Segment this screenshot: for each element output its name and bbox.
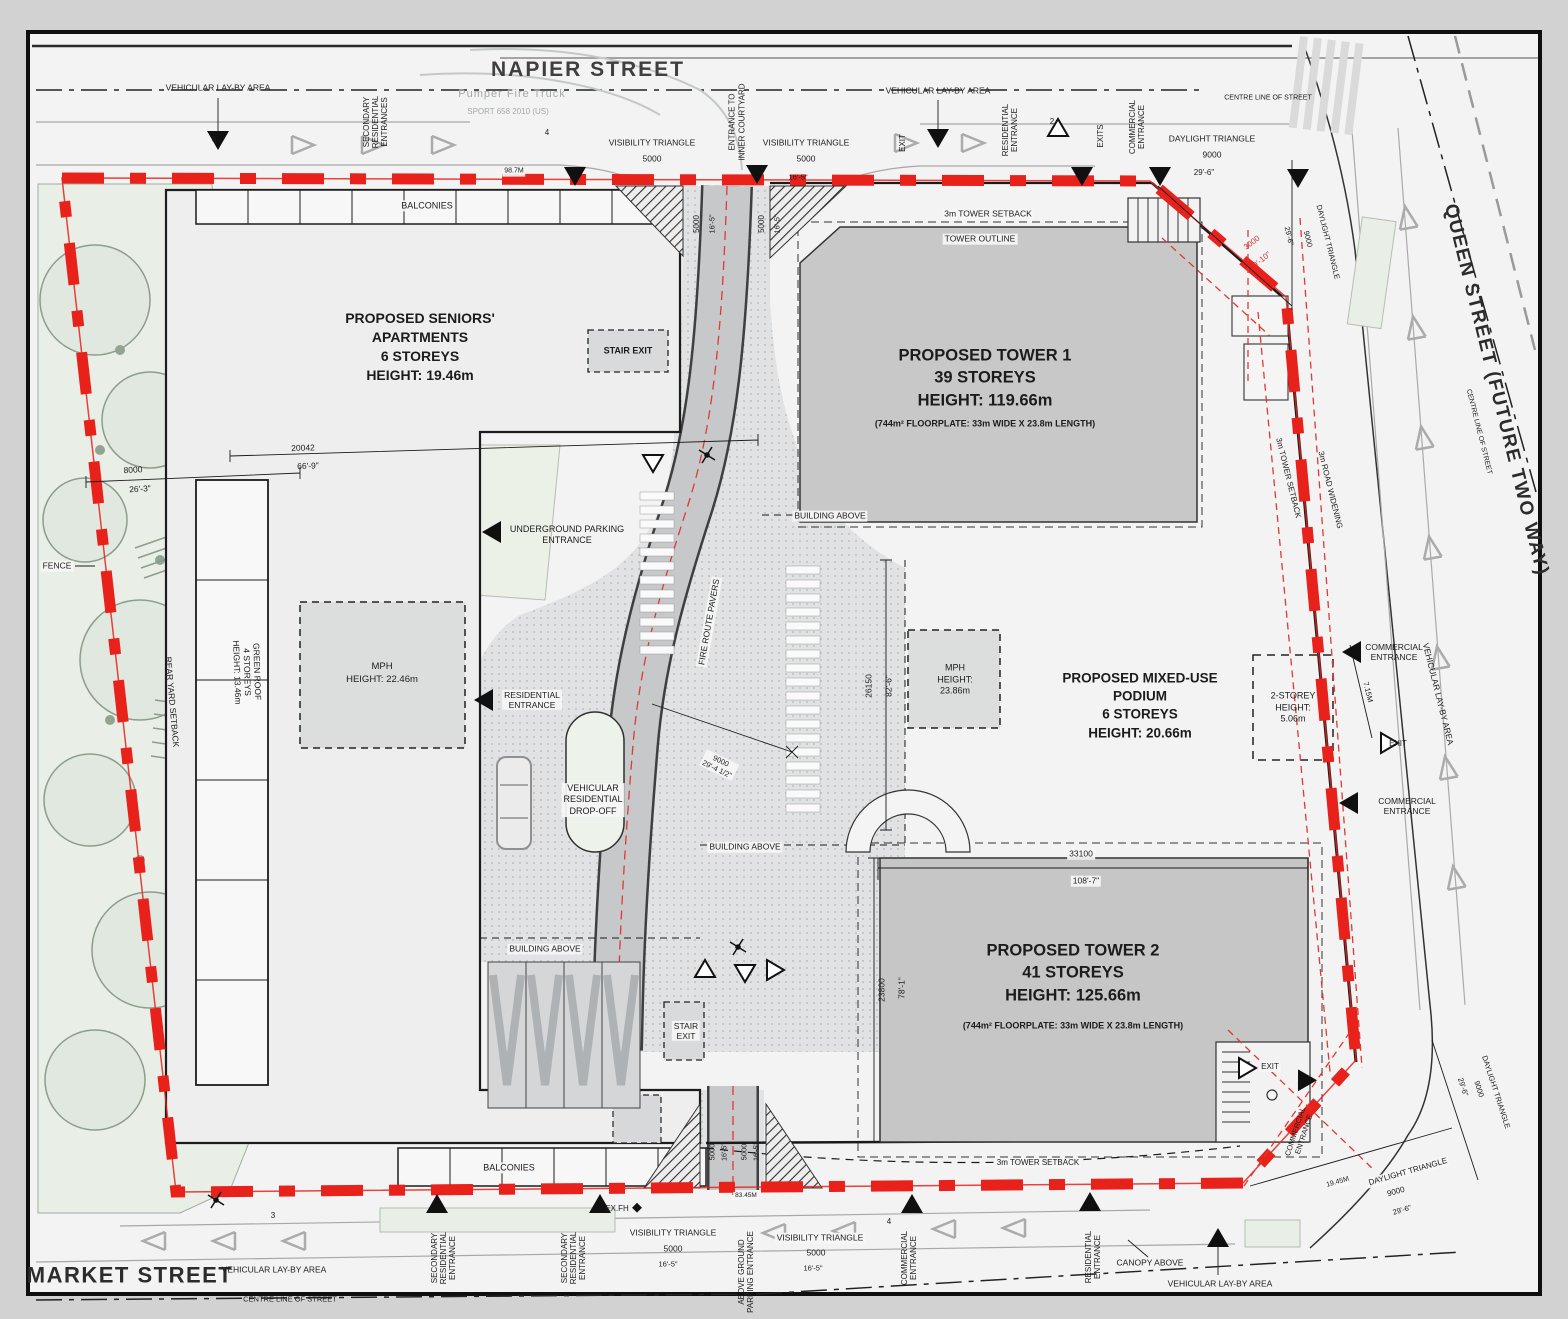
mph-west-box	[300, 602, 465, 748]
site-plan-drawing	[0, 0, 1568, 1319]
parking-bays	[488, 962, 640, 1108]
green-roof-strip	[196, 480, 268, 1085]
site-plan-page: NAPIER STREETQUEEN STREET (FUTURE TWO WA…	[0, 0, 1568, 1319]
car	[497, 757, 531, 849]
stair-exit-box-north	[588, 330, 668, 372]
balconies-strip-top	[196, 190, 664, 224]
stair-exit-box-south	[664, 1002, 704, 1060]
tower-2-footprint	[858, 843, 1322, 1157]
mph-east-box	[908, 630, 1000, 728]
